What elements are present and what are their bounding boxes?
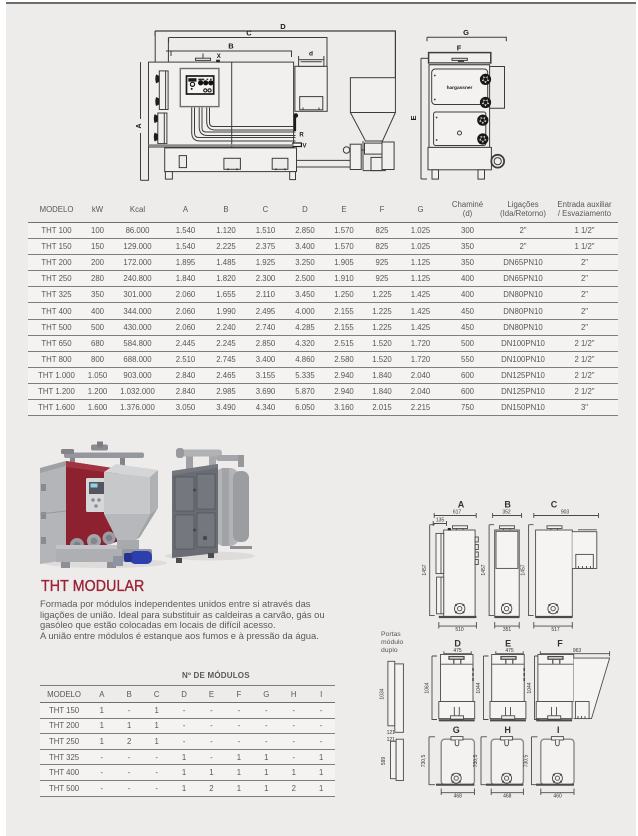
svg-text:963: 963: [573, 648, 582, 654]
svg-text:C: C: [551, 500, 558, 510]
svg-text:352: 352: [502, 509, 511, 515]
svg-text:121: 121: [387, 730, 396, 736]
svg-text:F: F: [557, 639, 563, 649]
svg-text:135: 135: [436, 517, 445, 523]
svg-text:C: C: [246, 29, 252, 38]
svg-text:460: 460: [553, 794, 562, 800]
svg-text:475: 475: [453, 648, 462, 654]
svg-text:G: G: [463, 28, 469, 37]
svg-text:A: A: [458, 500, 465, 510]
svg-text:599: 599: [381, 757, 387, 766]
svg-text:617: 617: [453, 509, 462, 515]
svg-text:903: 903: [561, 509, 570, 515]
svg-text:hargassner: hargassner: [447, 85, 473, 91]
svg-text:I: I: [557, 725, 560, 735]
svg-text:351: 351: [503, 627, 512, 633]
svg-text:730,5: 730,5: [523, 755, 529, 768]
svg-text:H: H: [504, 725, 511, 735]
svg-text:E: E: [505, 639, 511, 649]
svg-text:B: B: [228, 42, 234, 51]
svg-text:F: F: [457, 43, 462, 52]
svg-text:1044: 1044: [527, 682, 533, 693]
svg-text:B: B: [504, 500, 511, 510]
svg-text:V: V: [302, 144, 306, 150]
svg-text:475: 475: [505, 648, 514, 654]
svg-text:517: 517: [551, 627, 560, 633]
svg-text:1457: 1457: [481, 564, 487, 575]
svg-text:730,5: 730,5: [421, 755, 427, 768]
svg-text:1064: 1064: [424, 682, 430, 693]
svg-text:468: 468: [454, 794, 463, 800]
svg-text:121: 121: [387, 737, 396, 743]
svg-text:d: d: [309, 51, 313, 58]
svg-text:1457: 1457: [422, 564, 428, 575]
svg-text:X: X: [217, 54, 221, 60]
svg-text:E: E: [409, 115, 418, 120]
svg-text:R: R: [299, 133, 304, 139]
svg-text:510: 510: [455, 627, 464, 633]
svg-text:A: A: [136, 123, 143, 128]
svg-text:1457: 1457: [521, 564, 527, 575]
svg-text:D: D: [454, 639, 461, 649]
svg-text:1034: 1034: [380, 688, 386, 699]
svg-text:G: G: [453, 725, 460, 735]
svg-text:D: D: [280, 22, 286, 31]
svg-text:730,5: 730,5: [473, 755, 479, 768]
svg-text:468: 468: [503, 794, 512, 800]
svg-text:1044: 1044: [476, 682, 482, 693]
